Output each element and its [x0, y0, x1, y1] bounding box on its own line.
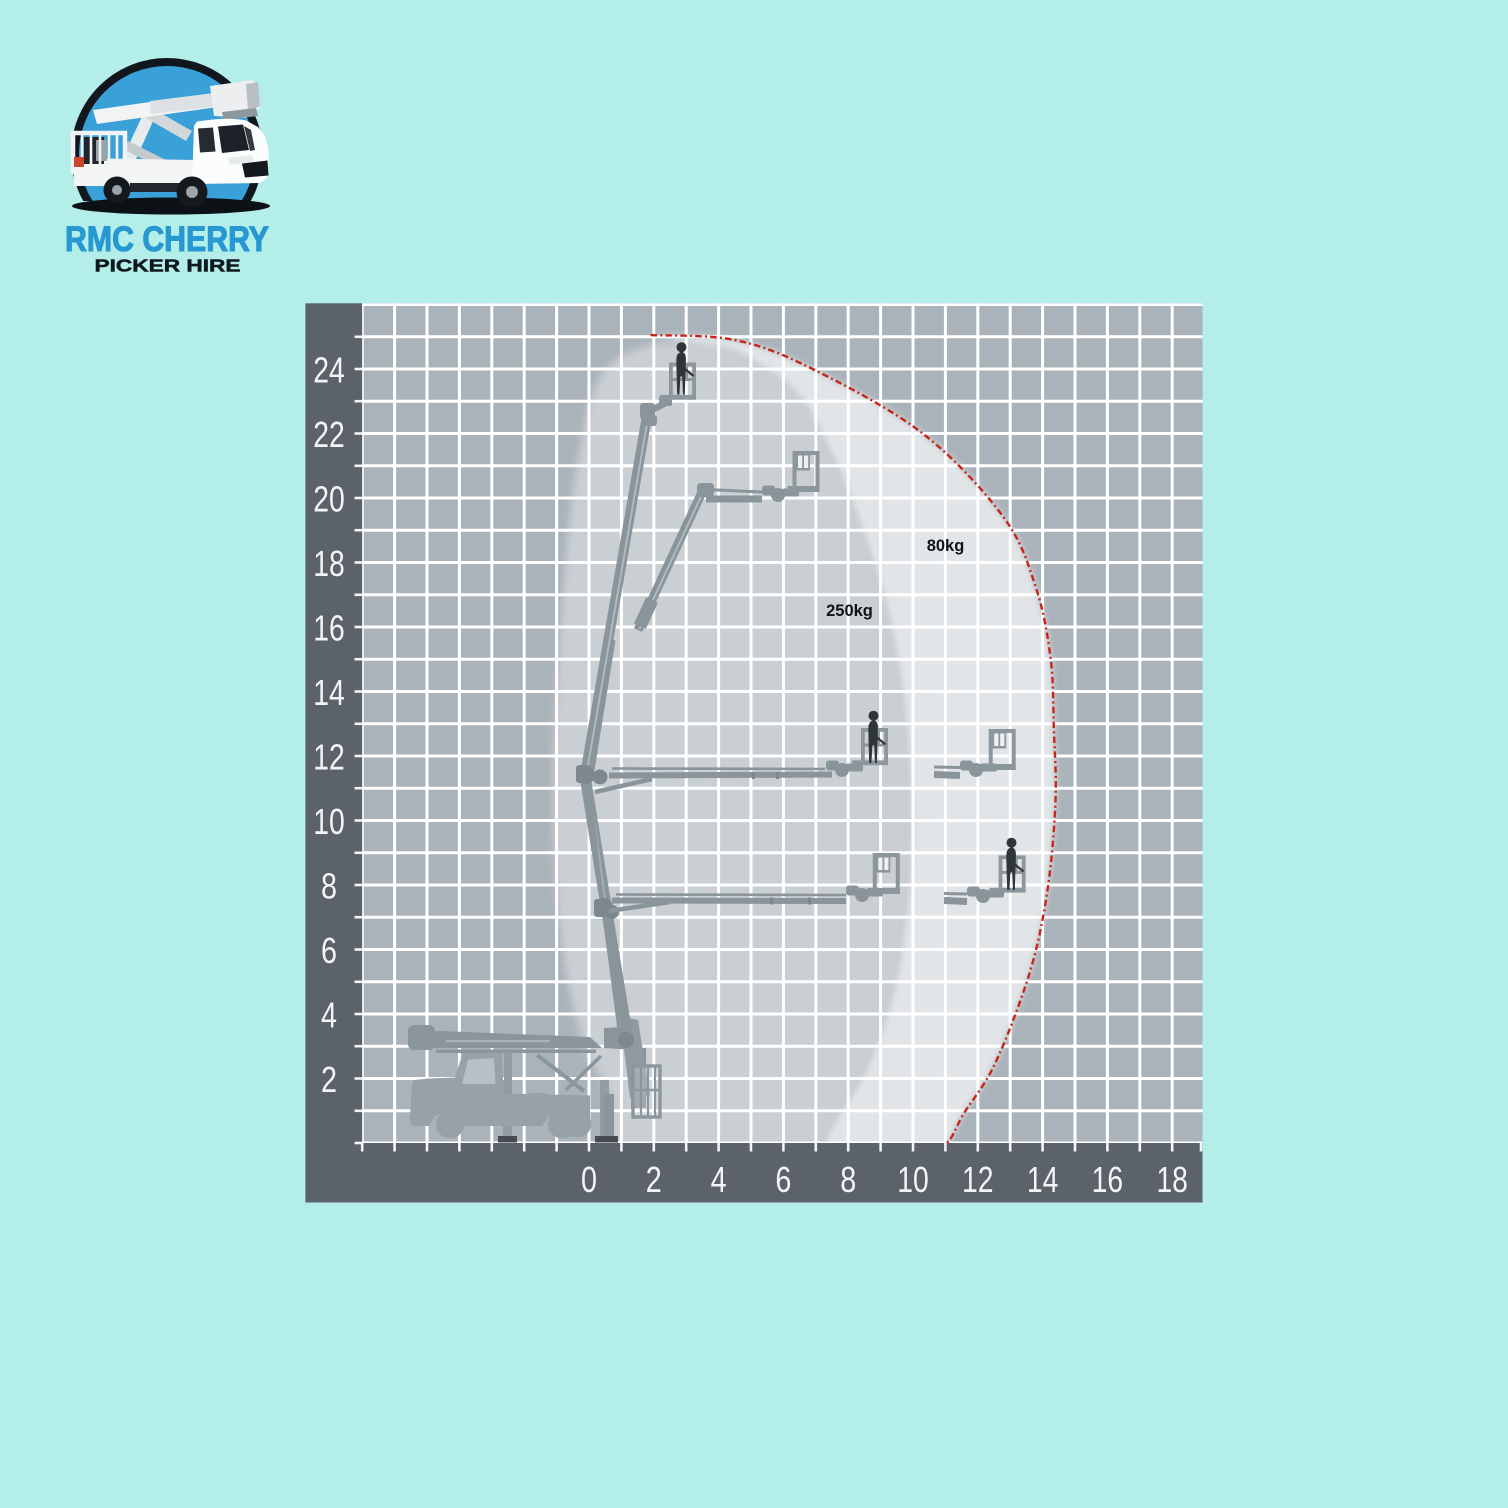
- svg-text:14: 14: [313, 672, 345, 713]
- svg-text:RMC CHERRY: RMC CHERRY: [65, 220, 269, 259]
- svg-text:4: 4: [321, 995, 337, 1036]
- svg-text:18: 18: [1156, 1159, 1188, 1200]
- svg-text:8: 8: [321, 866, 337, 907]
- svg-text:2: 2: [321, 1059, 337, 1100]
- svg-text:PICKER HIRE: PICKER HIRE: [95, 256, 241, 276]
- svg-text:12: 12: [962, 1159, 994, 1200]
- svg-text:250kg: 250kg: [826, 602, 873, 620]
- svg-text:14: 14: [1027, 1159, 1059, 1200]
- svg-text:0: 0: [581, 1159, 597, 1200]
- svg-text:2: 2: [646, 1159, 662, 1200]
- svg-text:80kg: 80kg: [927, 537, 965, 555]
- svg-text:18: 18: [313, 543, 345, 584]
- svg-text:10: 10: [897, 1159, 929, 1200]
- svg-text:8: 8: [840, 1159, 856, 1200]
- svg-text:10: 10: [313, 801, 345, 842]
- svg-text:6: 6: [775, 1159, 791, 1200]
- svg-text:20: 20: [313, 479, 345, 520]
- svg-text:4: 4: [711, 1159, 727, 1200]
- svg-text:16: 16: [313, 608, 345, 649]
- svg-text:16: 16: [1092, 1159, 1124, 1200]
- svg-text:22: 22: [313, 414, 345, 455]
- svg-text:6: 6: [321, 930, 337, 971]
- svg-text:12: 12: [313, 737, 345, 778]
- svg-text:24: 24: [313, 350, 345, 391]
